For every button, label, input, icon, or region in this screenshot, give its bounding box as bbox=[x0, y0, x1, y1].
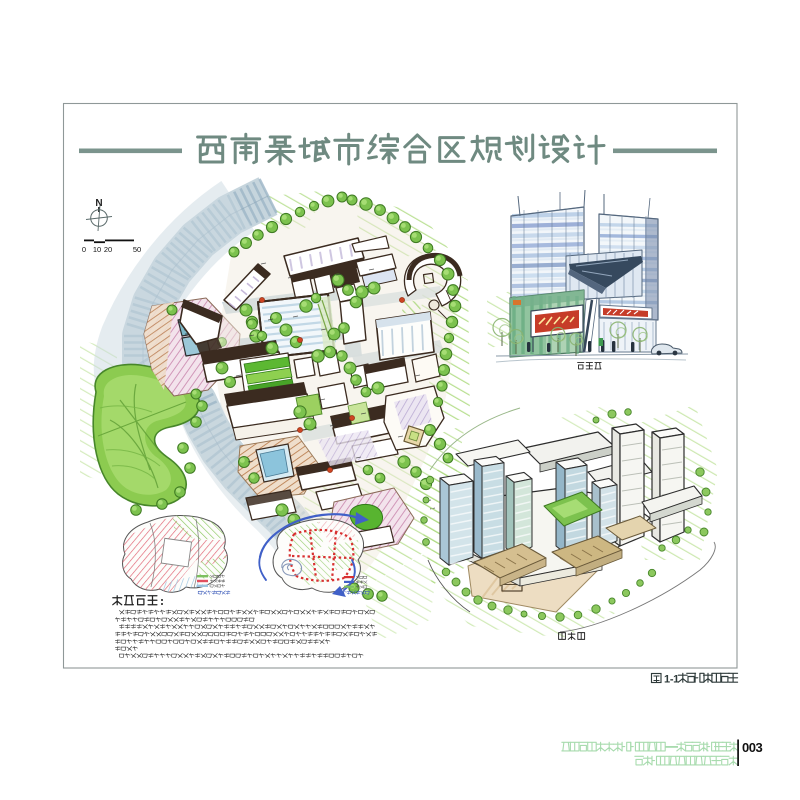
svg-text:20: 20 bbox=[104, 245, 112, 254]
svg-text:50: 50 bbox=[133, 245, 141, 254]
svg-text:003: 003 bbox=[742, 740, 762, 755]
svg-text:10: 10 bbox=[93, 245, 101, 254]
svg-text:0: 0 bbox=[82, 245, 86, 254]
svg-text:1-1: 1-1 bbox=[664, 674, 679, 686]
